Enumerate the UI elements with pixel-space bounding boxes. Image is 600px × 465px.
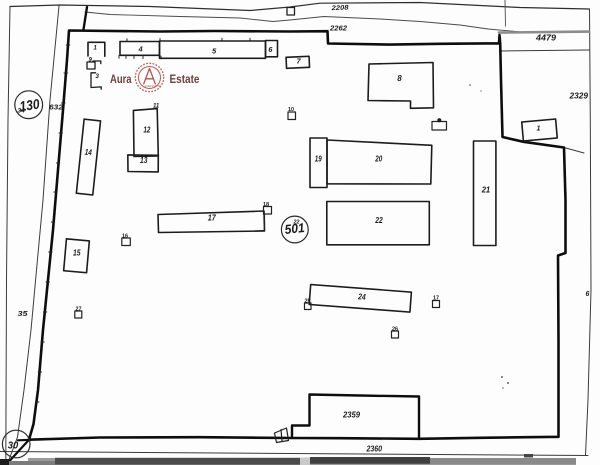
- svg-text:18: 18: [263, 202, 269, 208]
- svg-text:24: 24: [357, 291, 366, 302]
- svg-text:4479: 4479: [535, 33, 557, 42]
- svg-text:8: 8: [397, 74, 402, 83]
- svg-text:27: 27: [76, 307, 82, 313]
- svg-text:12: 12: [143, 124, 150, 134]
- svg-text:10: 10: [288, 107, 294, 113]
- svg-text:26: 26: [392, 327, 398, 333]
- svg-text:17: 17: [433, 296, 439, 302]
- svg-text:1: 1: [537, 126, 541, 133]
- svg-text:2329: 2329: [568, 91, 588, 100]
- svg-text:16: 16: [122, 234, 128, 240]
- svg-text:2262: 2262: [329, 23, 348, 32]
- svg-text:19: 19: [315, 153, 322, 163]
- svg-text:20: 20: [375, 153, 383, 163]
- svg-text:22: 22: [293, 220, 300, 226]
- svg-text:6: 6: [586, 291, 590, 298]
- svg-text:AURA ESTATE: AURA ESTATE: [145, 85, 162, 88]
- svg-text:21: 21: [481, 185, 491, 195]
- svg-text:4: 4: [138, 44, 144, 53]
- svg-text:13: 13: [140, 155, 148, 165]
- svg-text:35: 35: [18, 311, 28, 318]
- svg-text:Aura: Aura: [110, 72, 132, 86]
- svg-text:632: 632: [49, 105, 63, 112]
- svg-text:2360: 2360: [366, 444, 383, 453]
- svg-text:22: 22: [375, 215, 383, 225]
- svg-text:25: 25: [305, 299, 311, 305]
- svg-text:34: 34: [18, 108, 26, 115]
- svg-text:11: 11: [153, 104, 160, 110]
- svg-text:Estate: Estate: [170, 72, 200, 86]
- svg-text:2359: 2359: [342, 411, 360, 420]
- svg-text:14: 14: [84, 147, 92, 158]
- svg-text:15: 15: [73, 249, 81, 258]
- svg-text:30: 30: [8, 441, 19, 452]
- svg-text:17: 17: [208, 213, 217, 223]
- svg-text:2208: 2208: [330, 4, 349, 12]
